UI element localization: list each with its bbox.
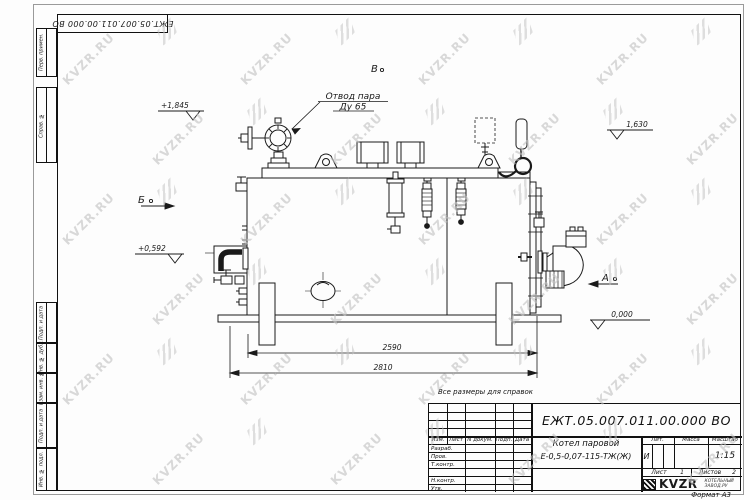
row-label-prov: Пров. xyxy=(431,454,447,460)
row-label-razrab: Разраб. xyxy=(431,446,453,452)
lit-header: Лит. xyxy=(641,436,674,444)
col-header-list: Лист xyxy=(447,436,465,444)
level-sensor-phantom xyxy=(475,118,500,168)
drawing-sheet: Перв. примен. Справ. № Подп. и дата Инв.… xyxy=(0,0,750,500)
title-doc-number: ЕЖТ.05.007.011.00.000 ВО xyxy=(531,404,742,436)
col-header-data: Дата xyxy=(513,436,531,444)
steam-outlet-valve xyxy=(238,118,291,168)
format-label: Формат А3 xyxy=(671,491,750,499)
scale-value: 1:15 xyxy=(708,444,742,468)
elevation-right-upper: 1,630 xyxy=(626,120,648,129)
callout-steam-line1: Отвод пара xyxy=(326,92,381,102)
row-label-utv: Утв. xyxy=(431,486,443,492)
product-model: Е-0,5-0,07-115-ТЖ(Ж) xyxy=(531,450,641,462)
sheet-value: 1 xyxy=(675,468,689,476)
scale-header: Масштаб xyxy=(708,436,742,444)
lit-value: И xyxy=(641,444,652,468)
dim-overall-length: 2810 xyxy=(373,363,392,372)
view-label-b: Б xyxy=(138,195,145,206)
mass-header: Масса xyxy=(674,436,708,444)
title-block: Изм. Лист N докум. Подп. Дата Разраб. Пр… xyxy=(428,403,741,491)
logo-area: KVZR КОТЕЛЬНЫЙ ЗАВОД.РУ xyxy=(643,476,741,492)
col-header-izm: Изм. xyxy=(429,436,447,444)
reference-note: Все размеры для справок xyxy=(438,388,533,396)
row-label-nkontr: Н.контр. xyxy=(431,478,456,484)
col-header-podp: Подп. xyxy=(495,436,513,444)
safety-valve-box-1 xyxy=(357,142,388,168)
elevation-top: +1,845 xyxy=(161,101,189,110)
callout-steam-line2: Ду 65 xyxy=(339,103,367,113)
elevation-zero: 0,000 xyxy=(611,310,633,319)
col-header-ndoc: N докум. xyxy=(465,436,495,444)
kvzr-logo-icon xyxy=(643,479,656,490)
product-name: Котел паровой xyxy=(531,437,641,451)
logo-subtext-2: ЗАВОД.РУ xyxy=(705,484,734,489)
left-wall-fittings xyxy=(214,177,248,305)
row-label-tkontr: Т.контр. xyxy=(431,462,455,468)
view-label-v: В xyxy=(371,64,378,75)
corner-stamp: ЕЖТ.05.007.011.00.000 ВО xyxy=(57,14,168,33)
corner-stamp-doc-number: ЕЖТ.05.007.011.00.000 ВО xyxy=(52,19,173,28)
dim-inner-length: 2590 xyxy=(382,343,401,352)
sheet-label: Лист xyxy=(641,468,677,476)
pressure-sensor-siphon xyxy=(499,119,531,176)
elevation-left: +0,592 xyxy=(138,244,166,253)
view-label-a: А xyxy=(601,273,609,284)
safety-valve-box-2 xyxy=(397,142,424,168)
kvzr-logo-text: KVZR xyxy=(659,477,698,491)
sheets-label: Листов xyxy=(691,468,729,476)
feed-elbow xyxy=(214,246,248,273)
sheets-value: 2 xyxy=(727,468,741,476)
